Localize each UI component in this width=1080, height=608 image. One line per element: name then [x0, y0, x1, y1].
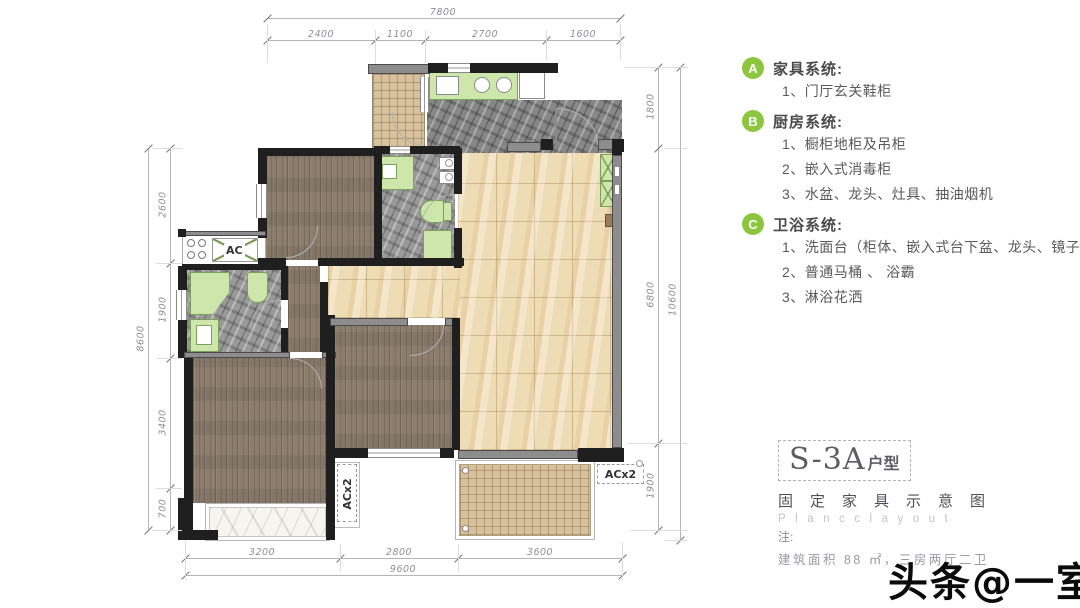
legend-item: 3、水盆、龙头、灶具、抽油烟机: [782, 187, 1078, 202]
toilet2-icon: [247, 272, 268, 303]
wall: [578, 448, 624, 462]
wall-niche: [614, 184, 620, 195]
extension-line: [664, 540, 688, 541]
hall-floor: [288, 266, 320, 352]
drain-icon: [462, 467, 469, 474]
kitchen-sink-icon: [436, 76, 459, 95]
dim-top-seg1: 1100: [380, 29, 420, 40]
wall: [374, 146, 460, 154]
wall: [318, 258, 464, 266]
wall: [374, 154, 382, 264]
dim-line: [267, 40, 620, 41]
ac-unit-icon: [187, 239, 195, 247]
extension-line: [425, 30, 426, 63]
wall: [180, 231, 266, 236]
extension-line: [267, 24, 268, 63]
shower1: [423, 230, 452, 261]
dim-right-total: 10600: [668, 280, 679, 320]
stove-burner-icon: [474, 77, 490, 93]
bath2-basin-icon: [196, 325, 212, 345]
dim-top-seg0: 2400: [301, 29, 341, 40]
window: [368, 448, 440, 458]
ac-unit-icon: [198, 251, 206, 259]
extension-line: [156, 358, 182, 359]
dim-line: [658, 67, 659, 530]
extension-line: [375, 30, 376, 63]
dim-left-seg0: 2600: [158, 185, 169, 225]
legend-item: 2、嵌入式消毒柜: [782, 162, 1078, 177]
wall-right: [612, 155, 622, 448]
legend-title-c: 卫浴系统:: [773, 214, 843, 235]
wall: [541, 139, 553, 150]
legend-item: 3、淋浴花洒: [782, 290, 1078, 305]
dim-line: [185, 575, 622, 576]
ac-equipment-box: AC: [212, 238, 258, 262]
title-subtitle-en: Plancclayout: [778, 513, 1078, 525]
note-label: 注:: [778, 528, 1078, 545]
balcony-right-floor: [459, 464, 591, 536]
balcony-left-floor: [209, 507, 326, 537]
title-subtitle: 固定家具示意图: [778, 490, 1078, 511]
bedroom2-floor: [265, 156, 374, 260]
wall: [281, 328, 288, 354]
title-block: S-3A户型 固定家具示意图 Plancclayout 注: 建筑面积 88 ㎡…: [778, 440, 1078, 568]
bath1-basin-icon: [382, 164, 397, 179]
wall: [184, 352, 290, 358]
drain-icon: [636, 460, 643, 467]
floorplan-page: AC: [0, 0, 1080, 608]
legend-item: 1、洗面台（柜体、嵌入式台下盆、龙头、镜子）: [782, 240, 1078, 255]
legend: A 家具系统: 1、门厅玄关鞋柜 B 厨房系统: 1、橱柜地柜及吊柜 2、嵌入式…: [742, 56, 1078, 315]
window-sill: [458, 450, 578, 459]
window: [256, 184, 267, 218]
drain-icon: [462, 525, 469, 532]
ac-unit-icon: [198, 239, 206, 247]
extension-line: [458, 544, 459, 572]
dim-line: [185, 558, 622, 559]
dim-left-seg3: 700: [158, 489, 169, 529]
wall: [182, 264, 286, 270]
legend-item: 1、橱柜地柜及吊柜: [782, 137, 1078, 152]
balcony-door-leaf: [420, 77, 429, 112]
legend-section-a-header: A 家具系统:: [742, 56, 1078, 80]
washer-drum-icon: [445, 173, 453, 181]
dim-line: [170, 148, 171, 530]
dim-bottom-total: 9600: [383, 564, 423, 575]
dim-bottom-seg0: 3200: [242, 547, 282, 558]
watermark: 头条@一室: [888, 550, 1080, 608]
ac-shaft-left-label-box: ACx2: [337, 464, 357, 522]
wall: [326, 315, 335, 540]
wall: [258, 156, 267, 184]
unit-name: S-3A: [789, 442, 866, 477]
ac-shaft-right-label: ACx2: [598, 468, 643, 481]
extension-line: [620, 24, 621, 60]
dim-right-seg1: 6800: [646, 275, 657, 315]
ac-shaft-left-label: ACx2: [341, 466, 353, 522]
wall: [178, 229, 186, 237]
extension-line: [628, 443, 688, 444]
wall: [454, 148, 462, 194]
legend-item: 2、普通马桶 、 浴霸: [782, 265, 1078, 280]
window: [448, 63, 470, 73]
dim-bottom-seg1: 2800: [379, 547, 419, 558]
extension-line: [622, 542, 623, 580]
window: [176, 290, 187, 320]
wall: [507, 142, 541, 152]
balcony-right-frame: [455, 460, 595, 540]
wall: [368, 64, 430, 74]
wall: [258, 148, 380, 156]
ac-unit-icon: [187, 251, 195, 259]
dim-top-seg2: 2700: [465, 29, 505, 40]
dim-right-seg0: 1800: [646, 87, 657, 127]
unit-name-box: S-3A户型: [778, 440, 911, 481]
dim-left-total: 8600: [136, 319, 147, 359]
extension-line: [546, 30, 547, 60]
fridge: [519, 72, 545, 99]
legend-badge-b: B: [742, 110, 764, 132]
extension-line: [664, 148, 688, 149]
dim-right-seg2: 1900: [646, 466, 657, 506]
washer-drum-icon: [445, 159, 453, 167]
dim-top-seg3: 1600: [563, 29, 603, 40]
corridor-floor: [328, 266, 460, 318]
window: [390, 146, 410, 154]
extension-line: [185, 540, 186, 580]
dim-top-total: 7800: [423, 7, 463, 18]
extension-line: [152, 148, 182, 149]
dim-left-seg2: 3400: [158, 403, 169, 443]
legend-section-c-header: C 卫浴系统:: [742, 212, 1078, 236]
dim-bottom-seg2: 3600: [520, 547, 560, 558]
extension-line: [152, 530, 182, 531]
extension-line: [156, 488, 182, 489]
dim-line: [680, 67, 681, 540]
dim-left-seg1: 1900: [158, 290, 169, 330]
wall: [330, 318, 408, 326]
wall: [452, 318, 460, 450]
stove-burner-icon: [496, 77, 512, 93]
ac-shaft-right-label-box: ACx2: [597, 464, 644, 484]
wall: [184, 530, 218, 540]
balcony-left-frame: [205, 503, 330, 541]
wall-niche: [614, 166, 620, 177]
legend-section-b-header: B 厨房系统:: [742, 109, 1078, 133]
wall: [184, 358, 193, 500]
legend-badge-a: A: [742, 57, 764, 79]
ac-platform-label: AC: [224, 244, 245, 257]
legend-title-a: 家具系统:: [773, 58, 843, 79]
dim-line: [267, 18, 620, 19]
extension-line: [156, 263, 182, 264]
living-room-floor: [458, 153, 612, 450]
dim-line: [148, 148, 149, 530]
legend-item: 1、门厅玄关鞋柜: [782, 84, 1078, 99]
unit-suffix: 户型: [868, 456, 900, 473]
extension-line: [630, 530, 688, 531]
extension-line: [340, 544, 341, 572]
legend-title-b: 厨房系统:: [773, 111, 843, 132]
wall: [281, 266, 288, 300]
legend-badge-c: C: [742, 213, 764, 235]
wall: [440, 448, 454, 458]
wall: [334, 448, 368, 458]
extension-line: [624, 67, 688, 68]
